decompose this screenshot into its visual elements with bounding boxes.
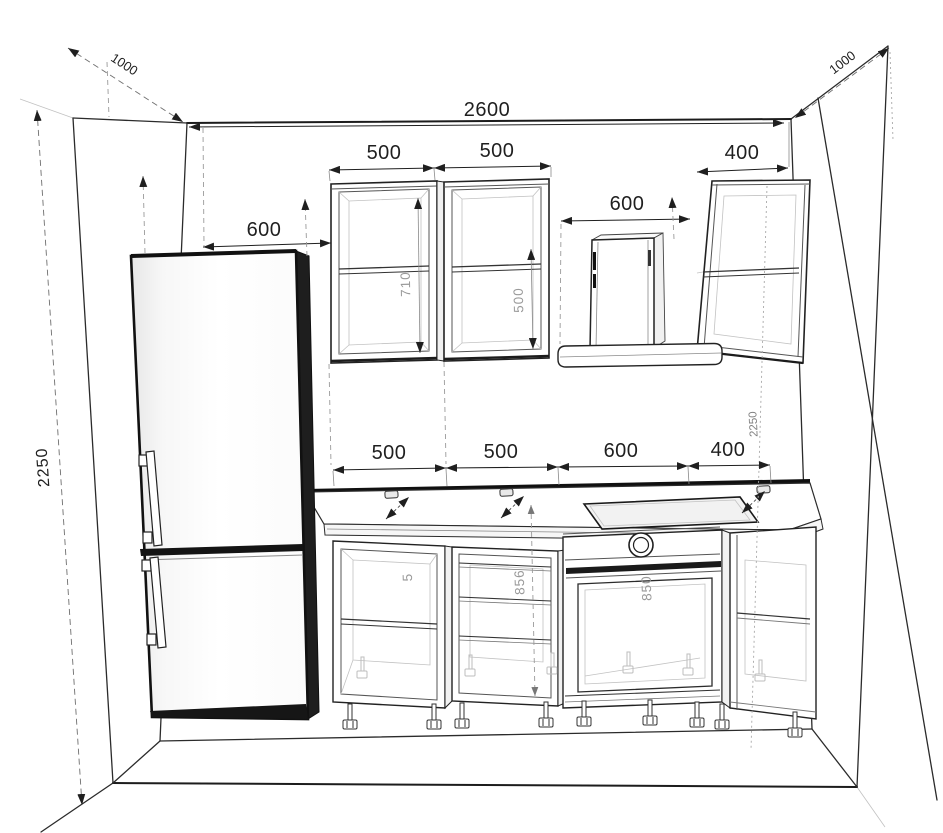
base-cabinet-1 [333,541,445,708]
dim-hood-gap-label: 600 [610,193,645,215]
dim-total-width-label: 2600 [464,99,511,121]
dim-base-cab1-label: 500 [372,442,407,464]
kitchen-drawing-canvas: 1000 1000 2600 2250 2250 600 500 500 600… [0,0,943,833]
dim-base-cab1-height-partial-label: 5 [400,573,415,582]
floor-wall-junction [160,729,812,741]
dim-height-left-label: 2250 [34,447,54,488]
dim-base-cab2-height-label: 856 [512,569,528,595]
dim-upper-cab2-height-label: 500 [511,287,526,313]
dim-base-cab3-label: 600 [604,440,639,462]
kitchen-elevation-drawing: 1000 1000 2600 2250 2250 600 500 500 600… [0,0,943,833]
dim-base-cab2-label: 500 [484,441,519,463]
dim-upper-cab1-height-label: 710 [398,271,413,297]
dim-oven-height-label: 850 [639,575,655,601]
base-cabinet-divider-1 [445,546,452,708]
dim-upper-cab3-label: 400 [725,142,760,164]
oven-cabinet [563,527,722,708]
wall-cabinet-3 [697,180,810,363]
hood-chimney [590,238,654,350]
wall-cabinet-1 [331,181,437,363]
dim-fridge-gap-label: 600 [247,219,282,241]
base-cabinet-divider-3 [722,530,730,708]
fridge [131,251,319,719]
dim-height-right-label: 2250 [747,411,760,437]
dim-base-cab4-label: 400 [711,439,746,461]
dim-upper-cab2-label: 500 [480,140,515,162]
base-cabinet-2-drawers [452,547,558,706]
wall-cabinet-2 [444,179,549,361]
oven-knob-icon [629,533,653,557]
base-cabinet-4 [730,527,816,719]
wall-cabinet-divider [437,181,444,361]
cooker-hood [558,233,722,367]
dim-upper-cab1-label: 500 [367,142,402,164]
dim-depth-left-label: 1000 [108,50,140,78]
fridge-body [131,251,308,719]
hood-chimney-side [654,233,665,348]
